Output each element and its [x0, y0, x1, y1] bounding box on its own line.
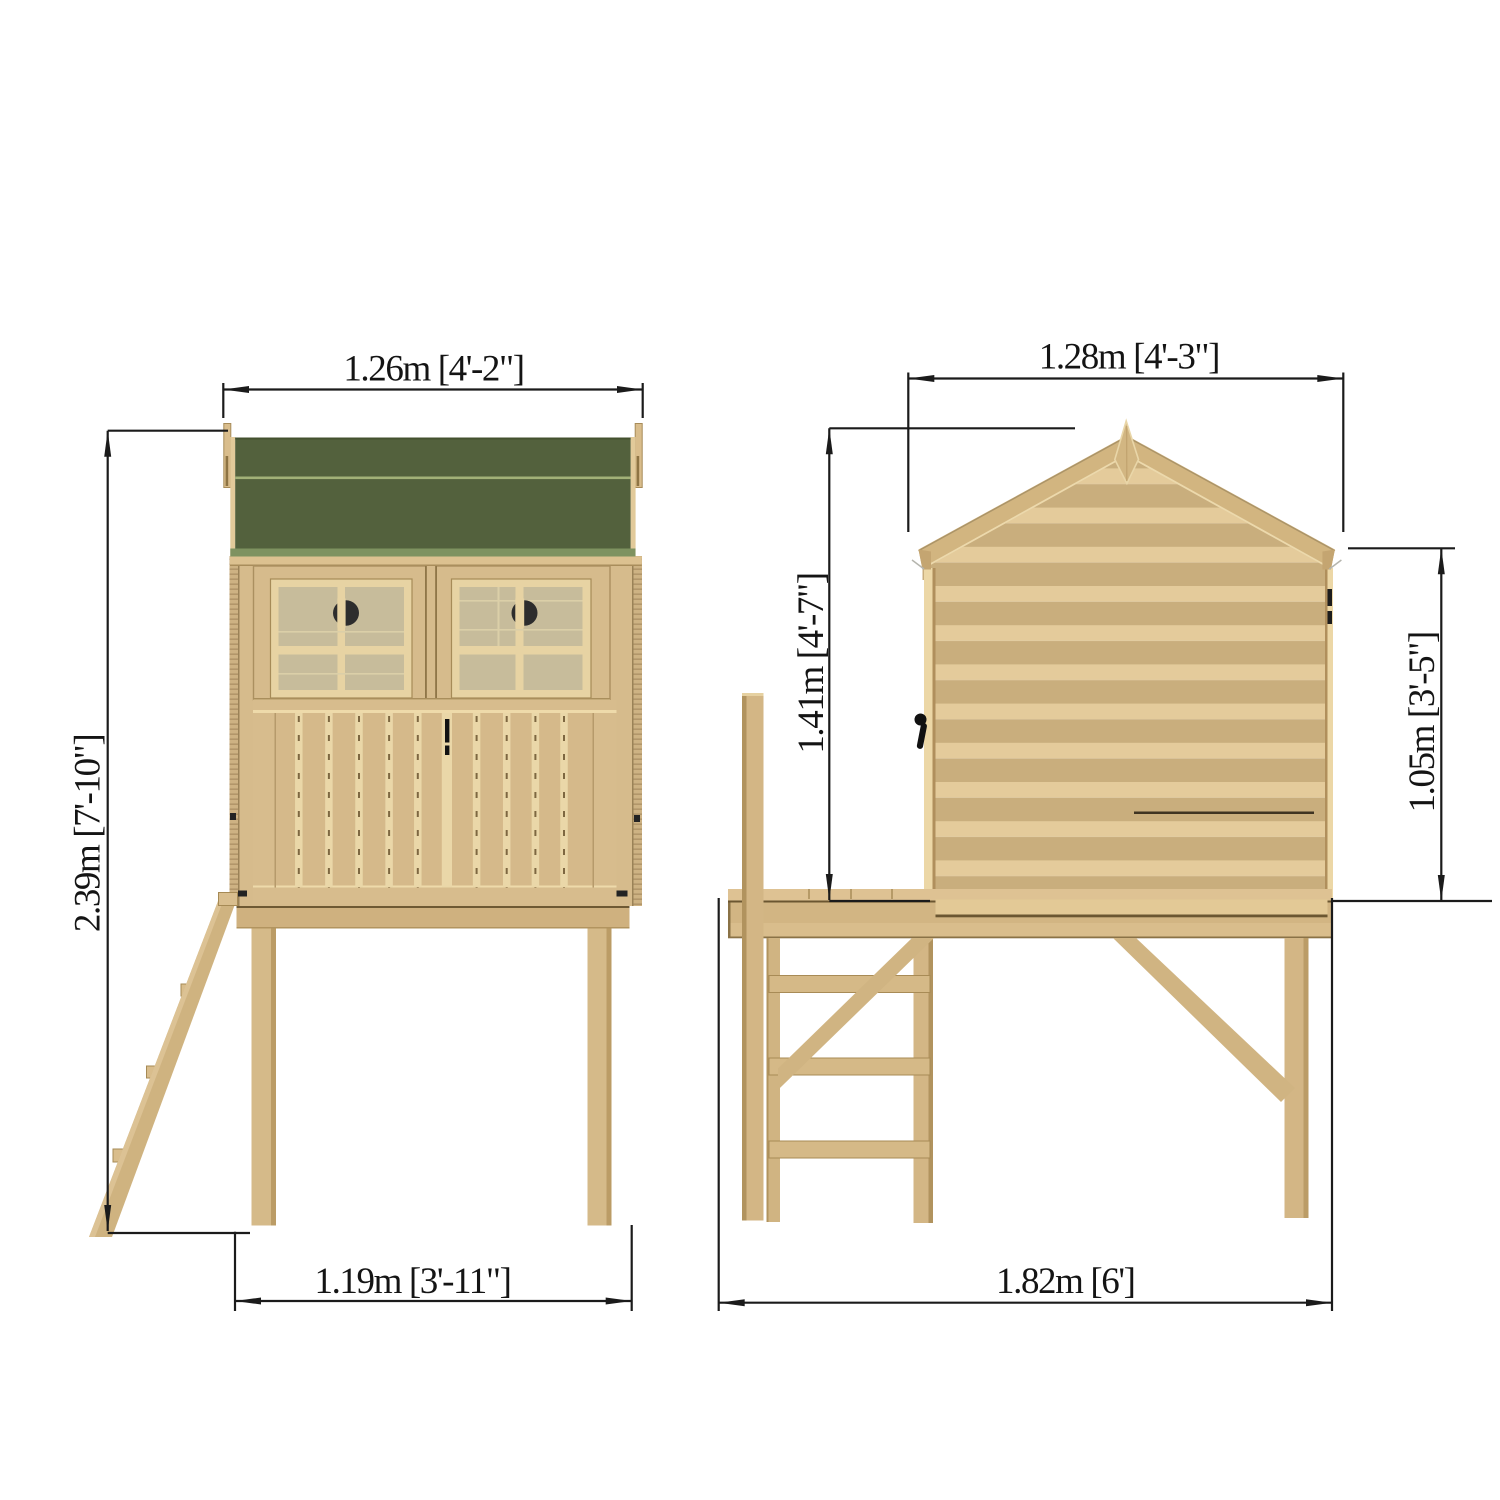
svg-text:2.39m [7'-10"]: 2.39m [7'-10"]	[68, 735, 109, 932]
svg-text:1.26m [4'-2"]: 1.26m [4'-2"]	[343, 349, 523, 390]
svg-text:1.28m [4'-3"]: 1.28m [4'-3"]	[1039, 337, 1219, 378]
svg-text:1.05m [3'-5"]: 1.05m [3'-5"]	[1402, 632, 1443, 812]
svg-text:1.19m [3'-11"]: 1.19m [3'-11"]	[314, 1261, 510, 1302]
svg-text:1.41m [4'-7"]: 1.41m [4'-7"]	[791, 573, 832, 753]
svg-text:1.82m [6']: 1.82m [6']	[996, 1261, 1135, 1302]
